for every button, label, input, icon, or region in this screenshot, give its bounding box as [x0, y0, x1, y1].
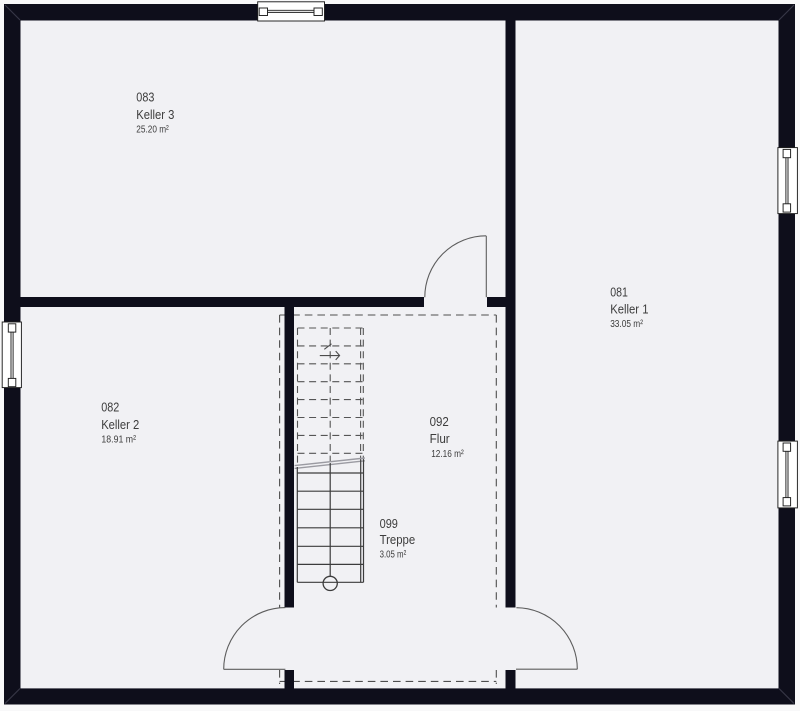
svg-text:Keller 3: Keller 3	[136, 107, 174, 122]
svg-text:081: 081	[610, 284, 628, 299]
svg-text:12.16 m²: 12.16 m²	[431, 449, 464, 460]
svg-text:Keller 1: Keller 1	[610, 301, 648, 316]
svg-text:3.05 m²: 3.05 m²	[380, 550, 407, 561]
svg-text:Keller 2: Keller 2	[101, 417, 139, 432]
svg-text:099: 099	[380, 516, 398, 531]
svg-text:Treppe: Treppe	[380, 532, 416, 547]
svg-text:18.91 m²: 18.91 m²	[101, 434, 136, 445]
svg-text:092: 092	[430, 414, 449, 429]
svg-text:083: 083	[136, 89, 154, 104]
svg-text:33.05 m²: 33.05 m²	[610, 319, 643, 330]
svg-text:082: 082	[101, 399, 119, 414]
svg-text:Flur: Flur	[430, 431, 451, 446]
svg-text:25.20 m²: 25.20 m²	[136, 124, 169, 135]
